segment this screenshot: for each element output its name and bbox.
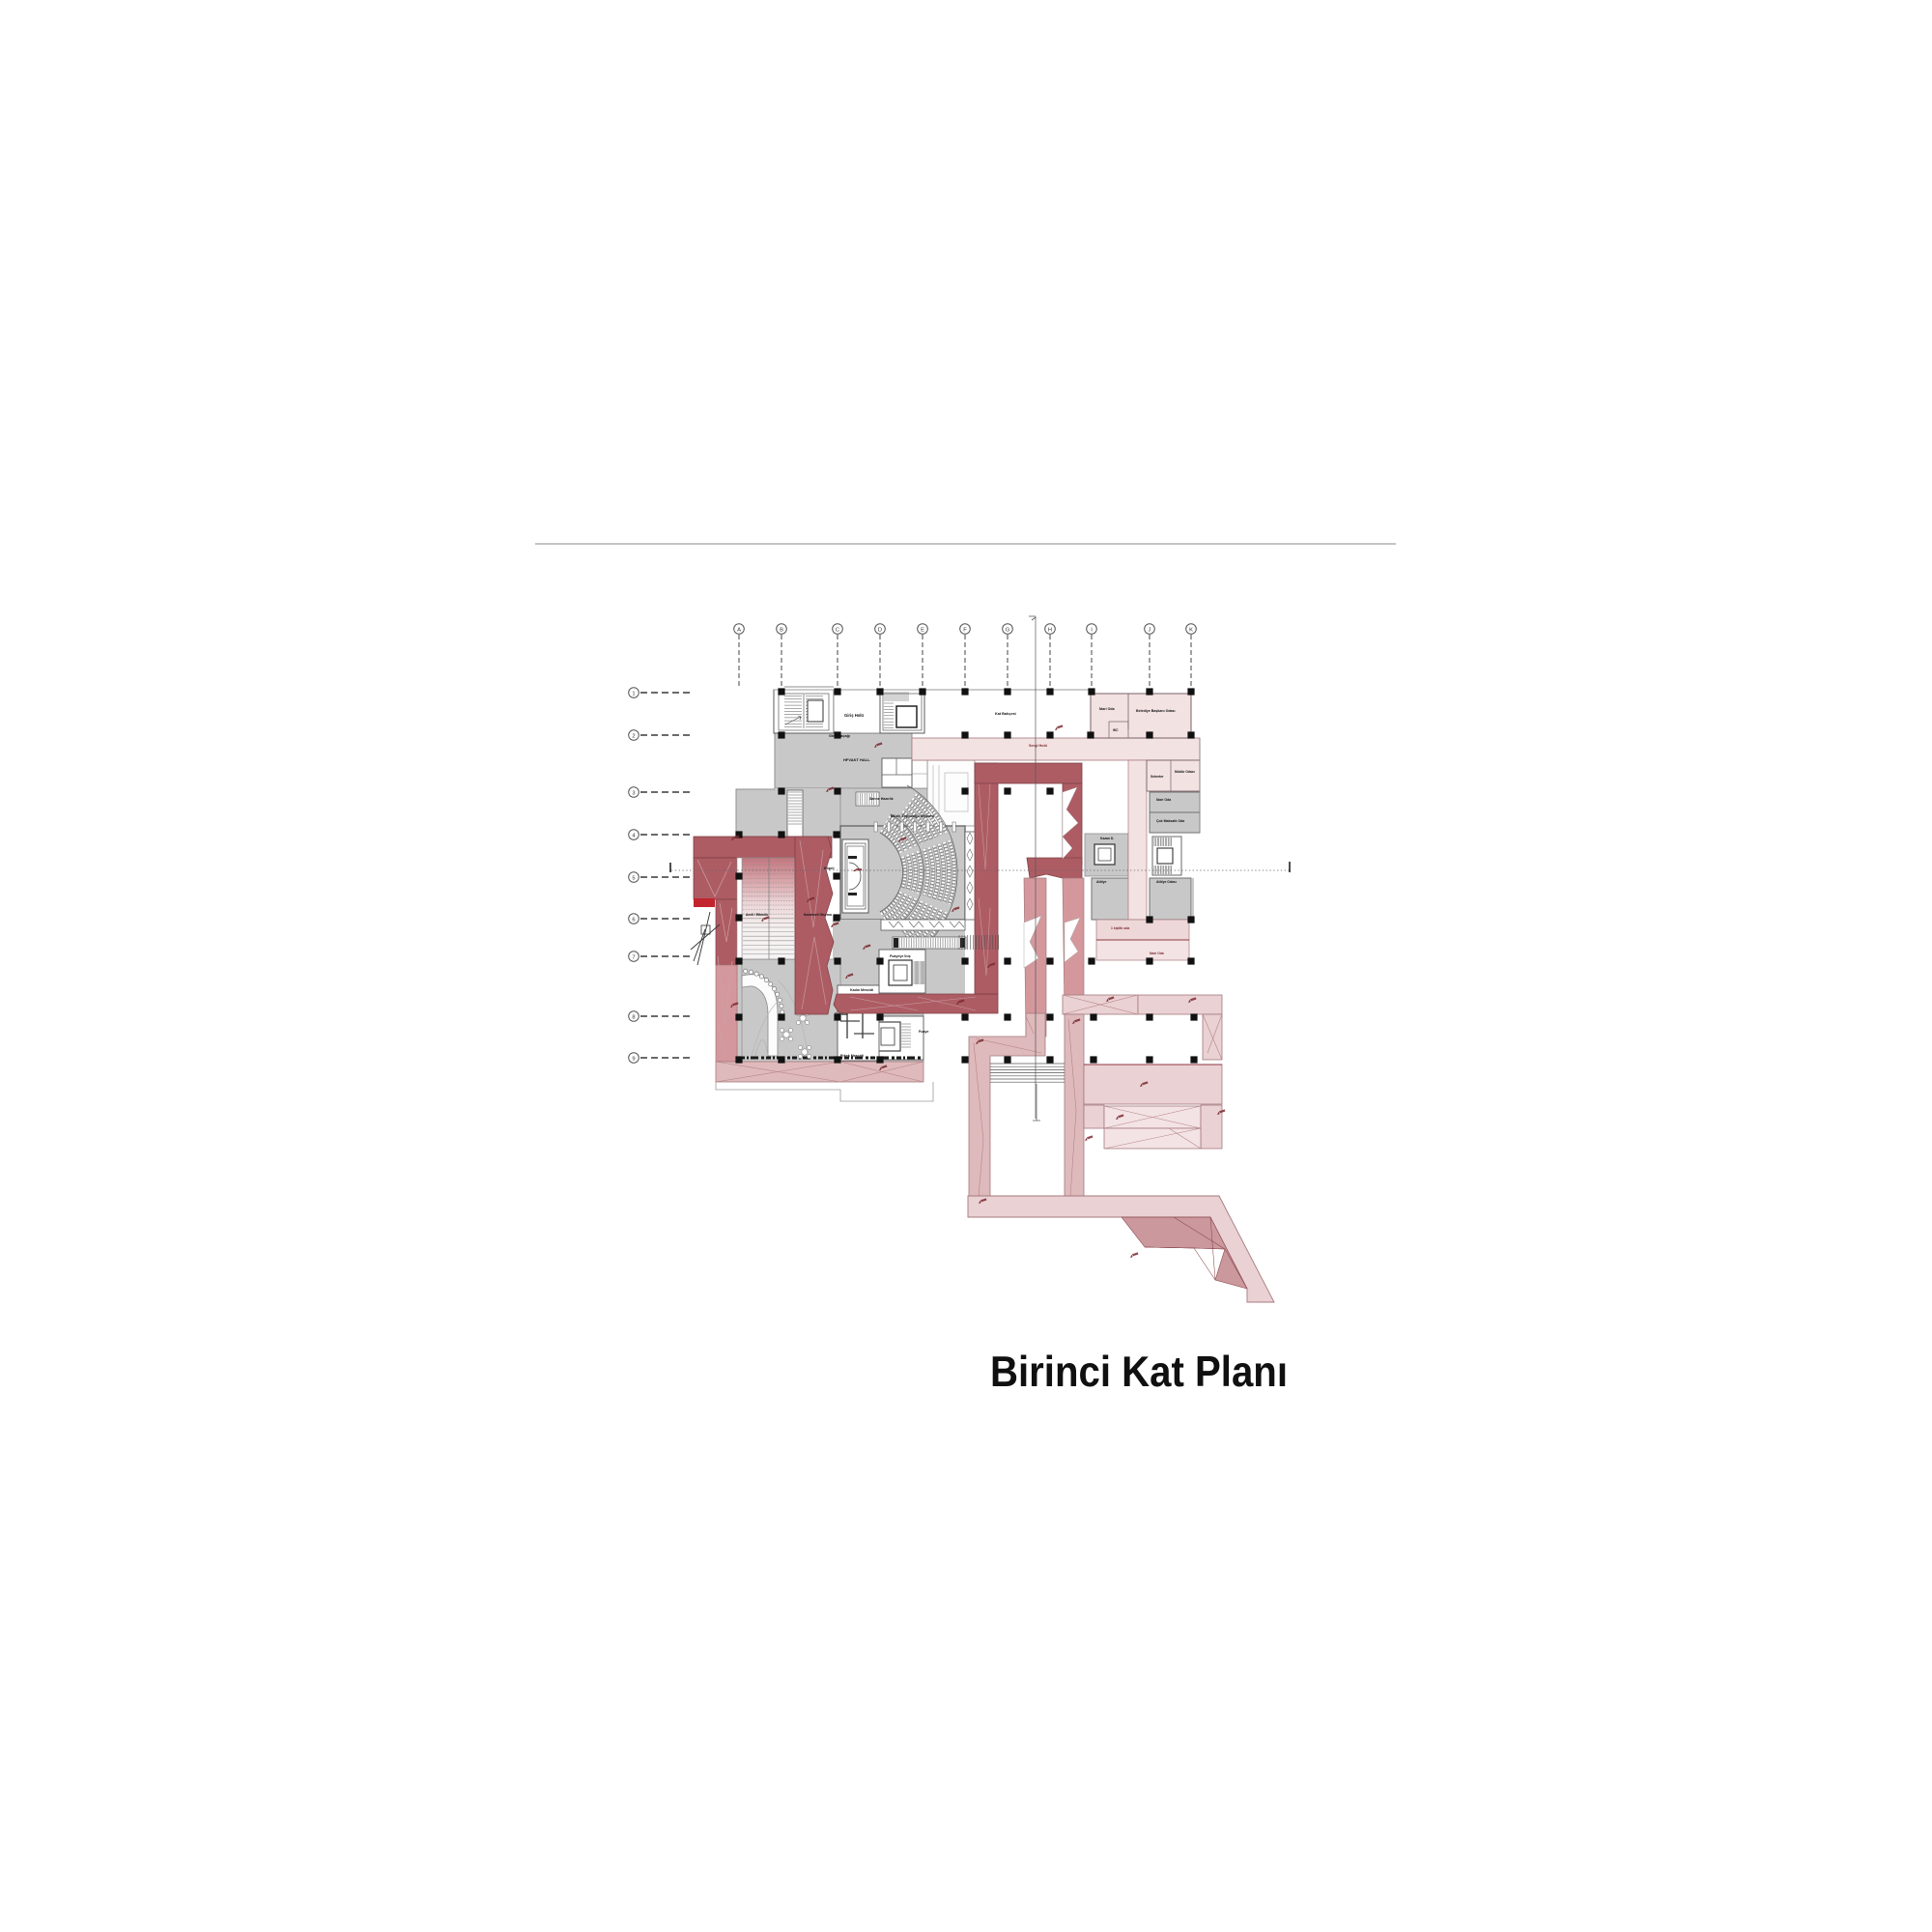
svg-text:6: 6 (632, 917, 635, 923)
svg-text:Kadın Mescidi: Kadın Mescidi (850, 988, 873, 992)
svg-text:5: 5 (632, 875, 635, 881)
svg-text:Sahne Hazırlık: Sahne Hazırlık (869, 797, 894, 801)
svg-text:WC: WC (1113, 728, 1119, 732)
svg-text:Belediye Başkanı Odası: Belediye Başkanı Odası (1136, 709, 1176, 713)
svg-text:Birinci Kat Planı: Birinci Kat Planı (990, 1349, 1288, 1396)
svg-text:3: 3 (632, 790, 635, 796)
svg-text:1: 1 (632, 691, 635, 696)
svg-text:E: E (921, 627, 924, 633)
svg-text:J: J (1149, 627, 1151, 633)
svg-text:Amfi / Etkinlik: Amfi / Etkinlik (746, 913, 768, 917)
svg-text:Fuayeye İniş: Fuayeye İniş (890, 954, 911, 958)
svg-text:İdari Oda: İdari Oda (1156, 798, 1171, 802)
svg-text:A: A (737, 627, 741, 633)
svg-text:8: 8 (632, 1014, 635, 1020)
svg-text:7: 7 (632, 954, 635, 960)
svg-text:Giriş Saçağı: Giriş Saçağı (829, 734, 850, 738)
svg-text:Kademeli Oturma: Kademeli Oturma (804, 913, 832, 917)
svg-text:Sergi Holü: Sergi Holü (1029, 744, 1048, 748)
svg-text:Fuaye: Fuaye (919, 1030, 928, 1034)
svg-text:Sekreter: Sekreter (1151, 775, 1164, 779)
svg-text:B: B (780, 627, 783, 633)
svg-text:Müdür Odası: Müdür Odası (1175, 770, 1195, 774)
svg-text:Atölye: Atölye (1096, 880, 1106, 884)
svg-text:D: D (878, 627, 882, 633)
svg-text:9: 9 (632, 1056, 635, 1062)
svg-text:HFVAKT HALL: HFVAKT HALL (843, 757, 870, 762)
svg-text:1 kişilik oda: 1 kişilik oda (1111, 926, 1129, 930)
svg-text:Giriş Holü: Giriş Holü (844, 713, 864, 718)
svg-text:2: 2 (632, 733, 635, 739)
svg-text:Atölye Odası: Atölye Odası (1156, 880, 1177, 884)
svg-text:İdari Oda: İdari Oda (1150, 952, 1164, 955)
svg-text:K: K (1189, 627, 1193, 633)
svg-text:F: F (963, 627, 967, 633)
svg-text:Müzik Topluluğu Sahnesi: Müzik Topluluğu Sahnesi (891, 814, 934, 818)
svg-text:İdari Oda: İdari Oda (1099, 707, 1116, 711)
svg-text:Kazan D.: Kazan D. (1100, 837, 1114, 840)
svg-text:Çok Maksatlı Oda: Çok Maksatlı Oda (1156, 819, 1184, 823)
svg-text:Kat Bahçesi: Kat Bahçesi (995, 712, 1016, 716)
svg-text:H: H (1048, 627, 1052, 633)
svg-text:C: C (836, 627, 839, 633)
svg-text:Restbar: Restbar (835, 1012, 848, 1016)
svg-text:Köprü: Köprü (824, 867, 835, 870)
svg-text:G: G (1006, 627, 1010, 633)
